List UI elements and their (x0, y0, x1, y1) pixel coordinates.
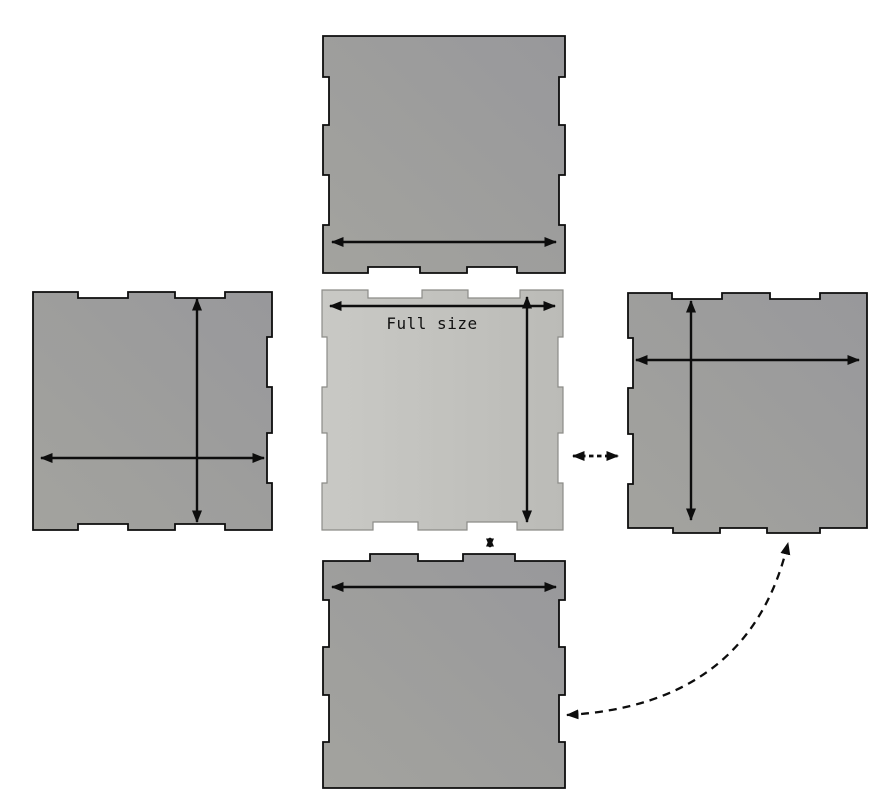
box-panel-layout-diagram: Full size (0, 0, 877, 799)
right-bottom-joint-curved-arrow (567, 543, 788, 715)
bottom-panel (323, 554, 565, 788)
right-panel (628, 293, 867, 533)
top-panel (323, 36, 565, 273)
diagram-svg: Full size (0, 0, 877, 799)
full-size-label: Full size (386, 314, 477, 333)
left-panel (33, 292, 272, 530)
